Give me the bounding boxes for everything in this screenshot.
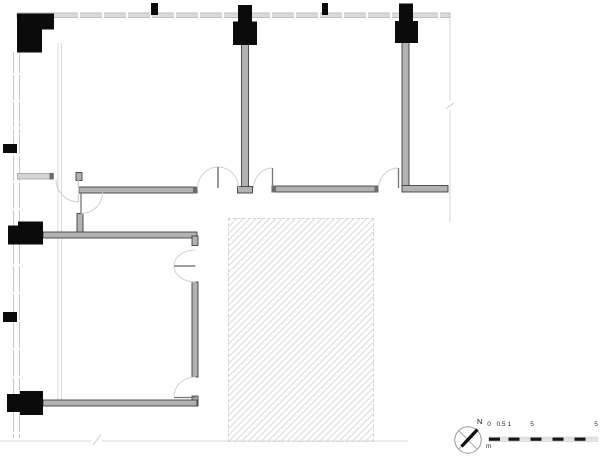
door-swing-arc xyxy=(174,267,196,283)
door-swing-arc xyxy=(218,167,239,189)
scale-unit-label: m xyxy=(486,443,491,450)
scale-bar-segment xyxy=(553,438,564,441)
scale-bar-segment xyxy=(575,438,586,441)
top-boundary-wall xyxy=(17,13,450,18)
wall-joint-tick xyxy=(13,292,21,294)
wall-end-cap xyxy=(375,186,379,193)
wall-joint-tick xyxy=(318,13,320,19)
wall-joint-tick xyxy=(174,13,176,19)
structural-column xyxy=(3,144,17,153)
wall-joint-tick xyxy=(198,13,200,19)
wall xyxy=(272,186,378,192)
wall xyxy=(43,232,197,238)
scale-tick-label: 5 xyxy=(594,421,598,428)
door-swing-arc xyxy=(174,250,196,266)
scale-tick-label: 1 xyxy=(508,421,512,428)
wall xyxy=(402,42,409,187)
wall-joint-tick xyxy=(13,181,21,183)
wall-joint-tick xyxy=(13,432,21,434)
wall xyxy=(192,282,198,377)
structural-column xyxy=(238,5,252,22)
scale-bar-segment xyxy=(531,438,542,441)
wall xyxy=(238,187,253,194)
door-swing-arc xyxy=(254,168,273,189)
wall-joint-tick xyxy=(438,13,440,19)
wall-joint-tick xyxy=(366,13,368,19)
scale-bar-segment xyxy=(500,438,509,441)
wall-end-cap xyxy=(193,187,197,194)
wall-joint-tick xyxy=(13,376,21,378)
scale-bar-segment xyxy=(542,438,553,441)
door-swing-arc xyxy=(81,193,103,214)
wall-joint-tick xyxy=(126,13,128,19)
wall-joint-tick xyxy=(342,13,344,19)
wall-joint-tick xyxy=(390,13,392,19)
structural-column xyxy=(322,3,328,15)
wall xyxy=(79,187,197,193)
wall-joint-tick xyxy=(13,264,21,266)
wall-joint-tick xyxy=(13,208,21,210)
wall xyxy=(76,173,82,181)
wall xyxy=(18,174,54,180)
wall xyxy=(402,186,448,193)
structural-column xyxy=(42,14,54,30)
wall xyxy=(43,400,197,406)
wall-joint-tick xyxy=(13,348,21,350)
wall-joint-tick xyxy=(222,13,224,19)
door-swing-arc xyxy=(379,168,399,189)
floor-plan-sheet: N m 00.5155 xyxy=(0,0,606,461)
structural-column xyxy=(233,22,257,46)
structural-column xyxy=(399,4,413,22)
structural-column xyxy=(20,391,43,415)
floor-plan-canvas xyxy=(0,0,606,461)
door-swing-arc xyxy=(174,377,196,397)
structural-column xyxy=(151,3,158,15)
wall-joint-tick xyxy=(270,13,272,19)
scale-bar-segment xyxy=(564,438,575,441)
door-swing-arc xyxy=(198,167,219,189)
scale-bar-segment xyxy=(509,438,520,441)
scale-bar-segment xyxy=(586,438,598,441)
structural-column xyxy=(17,14,42,53)
wall-joint-tick xyxy=(294,13,296,19)
structural-column xyxy=(8,226,18,245)
wall xyxy=(242,44,249,188)
structural-column xyxy=(18,222,43,245)
scale-bar-segment xyxy=(489,438,500,441)
wall-joint-tick xyxy=(78,13,80,19)
scale-tick-label: 5 xyxy=(530,421,534,428)
wall-joint-tick xyxy=(102,13,104,19)
scale-tick-label: 0 xyxy=(487,421,491,428)
scale-bar-segment xyxy=(520,438,531,441)
wall-joint-tick xyxy=(13,154,21,156)
wall-joint-tick xyxy=(13,100,21,102)
structural-column xyxy=(7,394,20,412)
wall xyxy=(77,214,83,234)
structural-column xyxy=(395,21,418,43)
wall xyxy=(192,236,198,246)
door-swing-arc xyxy=(56,180,79,203)
wall-joint-tick xyxy=(13,127,21,129)
scale-tick-label: 0.5 xyxy=(496,421,505,428)
north-label: N xyxy=(477,418,482,425)
structural-column xyxy=(3,312,17,322)
wall-joint-tick xyxy=(13,73,21,75)
wall-end-cap xyxy=(50,173,54,180)
